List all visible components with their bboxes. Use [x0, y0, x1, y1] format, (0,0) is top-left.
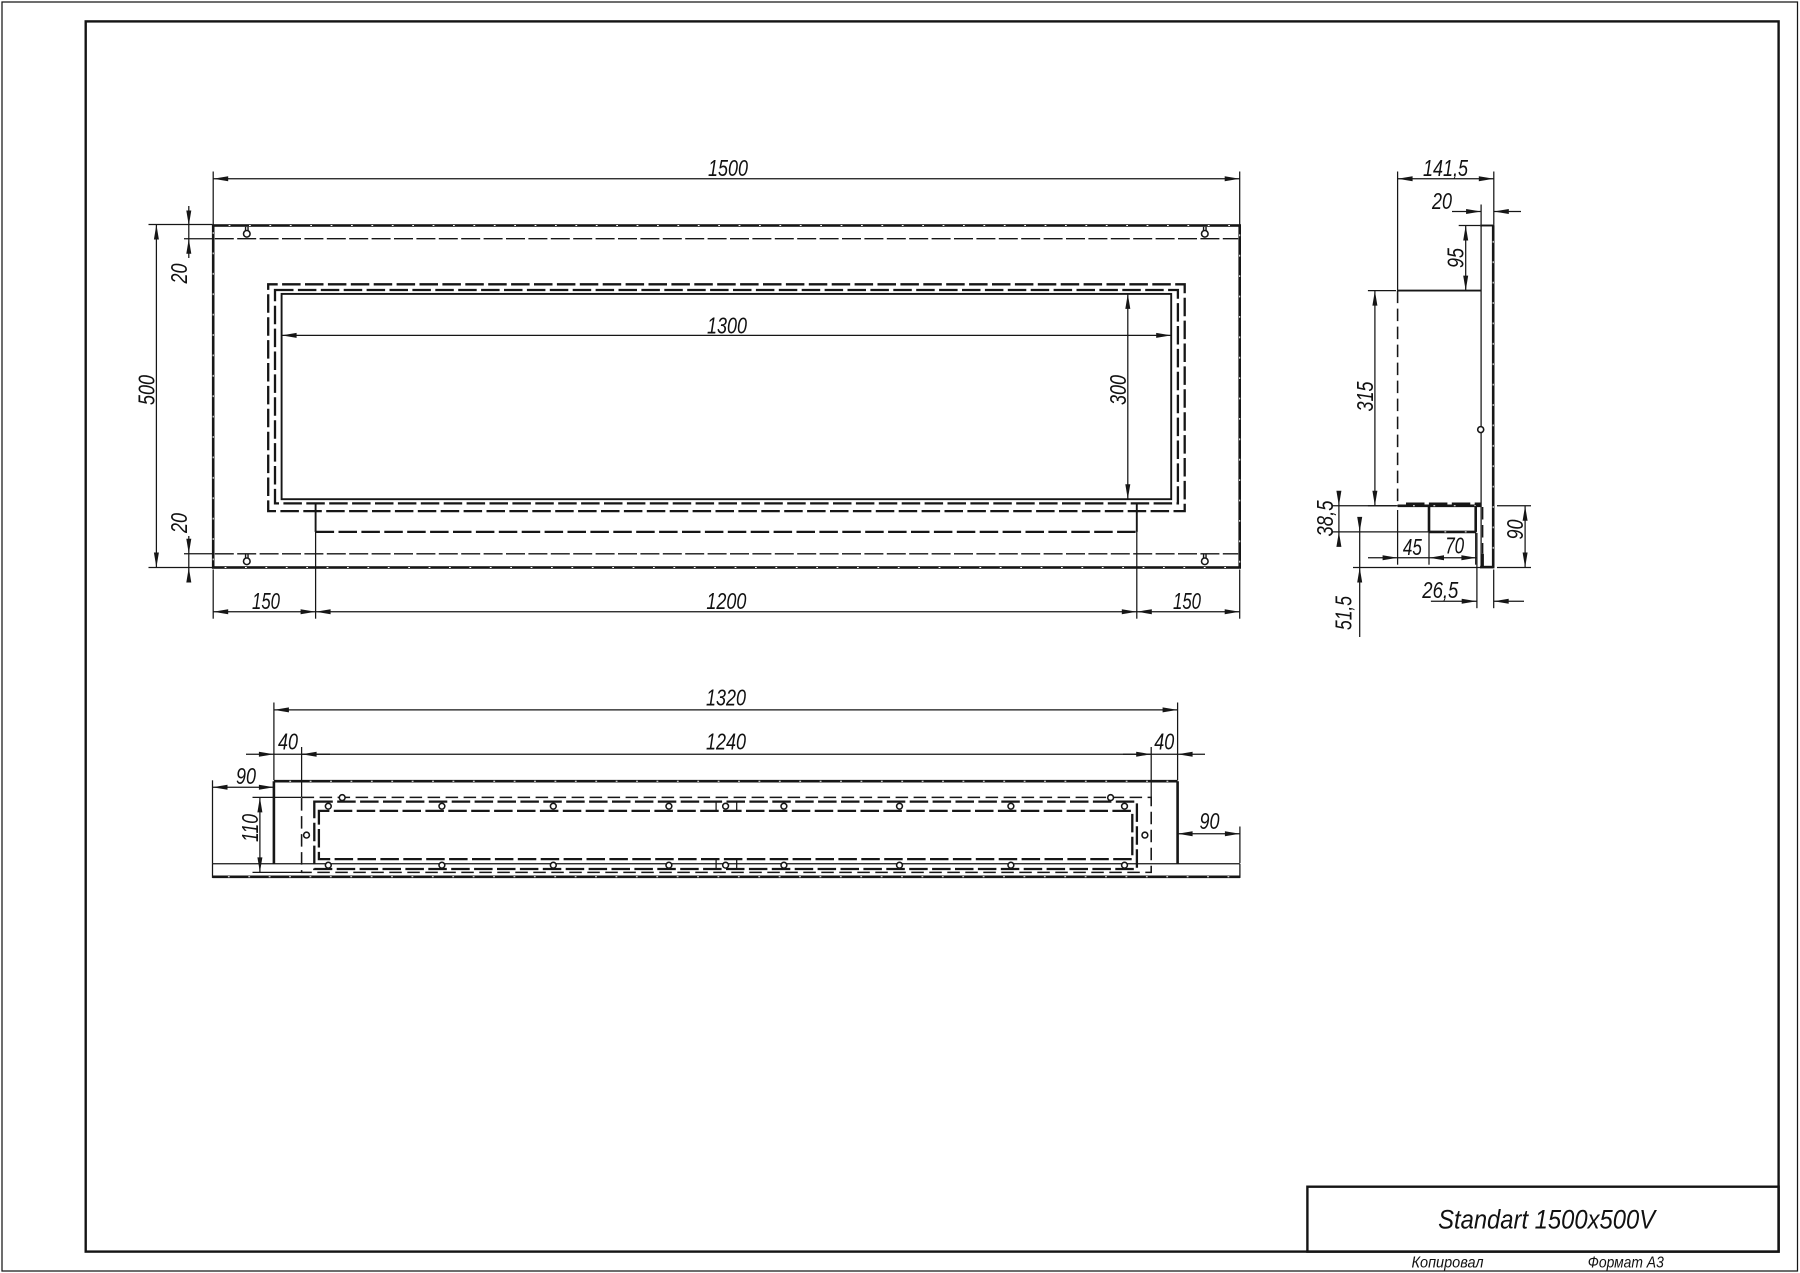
- svg-text:1320: 1320: [706, 685, 746, 711]
- svg-text:20: 20: [166, 513, 192, 534]
- svg-text:141,5: 141,5: [1423, 155, 1468, 181]
- svg-text:1300: 1300: [707, 313, 747, 339]
- svg-text:300: 300: [1105, 375, 1131, 405]
- svg-text:500: 500: [133, 375, 159, 405]
- svg-text:70: 70: [1445, 533, 1464, 559]
- svg-text:315: 315: [1352, 381, 1378, 411]
- svg-text:90: 90: [236, 763, 256, 789]
- svg-text:110: 110: [237, 814, 263, 842]
- svg-text:45: 45: [1403, 534, 1422, 560]
- svg-text:38,5: 38,5: [1312, 500, 1338, 536]
- svg-text:150: 150: [1173, 588, 1201, 614]
- svg-text:1200: 1200: [706, 588, 746, 614]
- svg-text:40: 40: [278, 729, 298, 755]
- svg-text:90: 90: [1200, 808, 1220, 834]
- svg-text:90: 90: [1502, 519, 1528, 539]
- svg-text:20: 20: [166, 263, 192, 284]
- svg-text:150: 150: [252, 588, 280, 614]
- svg-text:20: 20: [1431, 188, 1452, 214]
- svg-text:1240: 1240: [706, 729, 746, 755]
- svg-text:Копировал: Копировал: [1412, 1255, 1484, 1272]
- svg-text:Формат А3: Формат А3: [1588, 1255, 1664, 1272]
- svg-text:1500: 1500: [708, 155, 748, 181]
- svg-text:51,5: 51,5: [1331, 596, 1357, 630]
- svg-text:95: 95: [1443, 248, 1469, 268]
- svg-text:Standart 1500x500V: Standart 1500x500V: [1438, 1205, 1657, 1235]
- svg-text:26,5: 26,5: [1421, 577, 1458, 603]
- svg-text:40: 40: [1154, 729, 1174, 755]
